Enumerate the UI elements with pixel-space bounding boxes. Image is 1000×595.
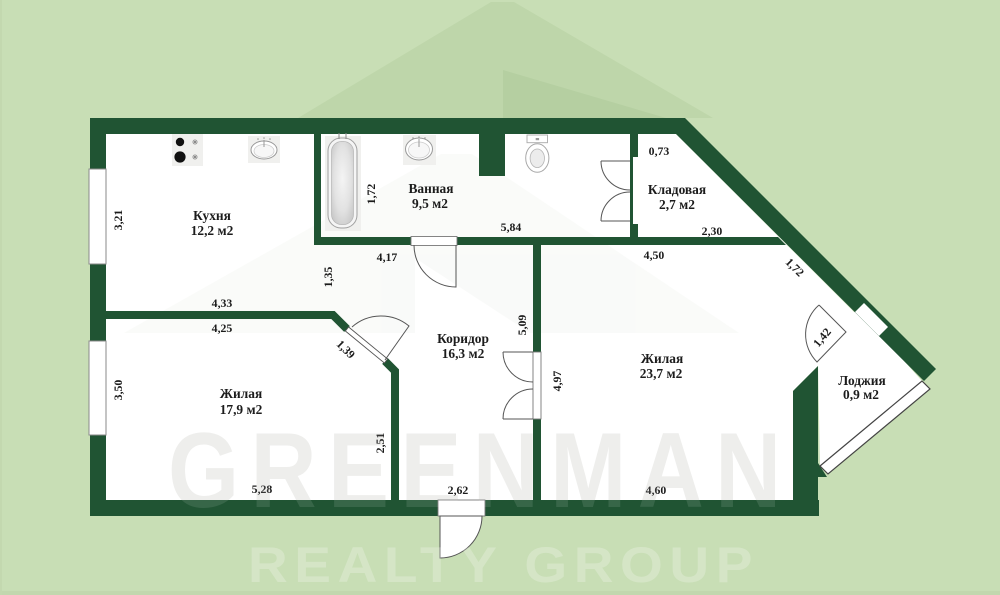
svg-text:Коридор: Коридор — [437, 331, 489, 346]
svg-text:Жилая: Жилая — [220, 386, 262, 401]
svg-text:0,9 м2: 0,9 м2 — [843, 387, 879, 402]
svg-text:Жилая: Жилая — [641, 351, 683, 366]
svg-text:2,30: 2,30 — [702, 224, 723, 238]
svg-text:4,33: 4,33 — [212, 296, 233, 310]
svg-text:2,7 м2: 2,7 м2 — [659, 197, 695, 212]
svg-text:5,09: 5,09 — [515, 315, 529, 336]
svg-text:4,97: 4,97 — [550, 371, 564, 392]
svg-text:1,72: 1,72 — [364, 184, 378, 205]
svg-text:3,50: 3,50 — [111, 380, 125, 401]
svg-text:4,50: 4,50 — [644, 248, 665, 262]
svg-text:23,7 м2: 23,7 м2 — [640, 366, 683, 381]
svg-text:3,21: 3,21 — [111, 210, 125, 231]
svg-text:REALTY GROUP: REALTY GROUP — [248, 537, 759, 593]
svg-text:Кладовая: Кладовая — [648, 182, 706, 197]
svg-text:Кухня: Кухня — [193, 208, 231, 223]
svg-text:12,2 м2: 12,2 м2 — [191, 223, 234, 238]
svg-text:16,3 м2: 16,3 м2 — [442, 346, 485, 361]
svg-text:4,17: 4,17 — [377, 250, 398, 264]
svg-text:9,5 м2: 9,5 м2 — [412, 196, 448, 211]
svg-text:1,35: 1,35 — [321, 267, 335, 288]
svg-text:0,73: 0,73 — [649, 144, 670, 158]
svg-text:Лоджия: Лоджия — [838, 373, 885, 388]
svg-text:4,25: 4,25 — [212, 321, 233, 335]
svg-text:5,84: 5,84 — [501, 220, 522, 234]
svg-text:GREENMAN: GREENMAN — [168, 411, 793, 530]
svg-text:Ванная: Ванная — [409, 181, 454, 196]
